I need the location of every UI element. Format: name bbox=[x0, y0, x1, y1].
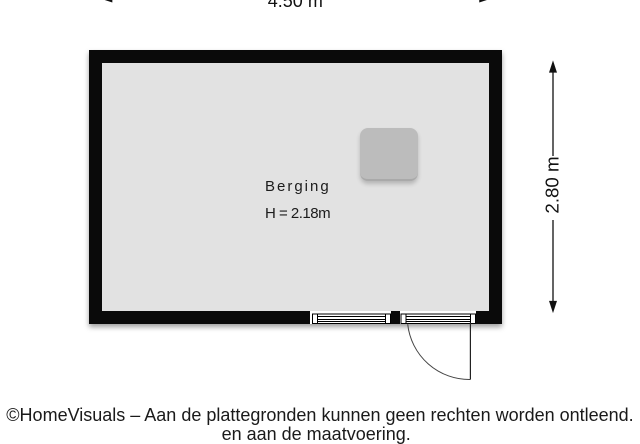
svg-text:4.50 m: 4.50 m bbox=[268, 0, 323, 11]
svg-text:2.80 m: 2.80 m bbox=[542, 156, 563, 213]
